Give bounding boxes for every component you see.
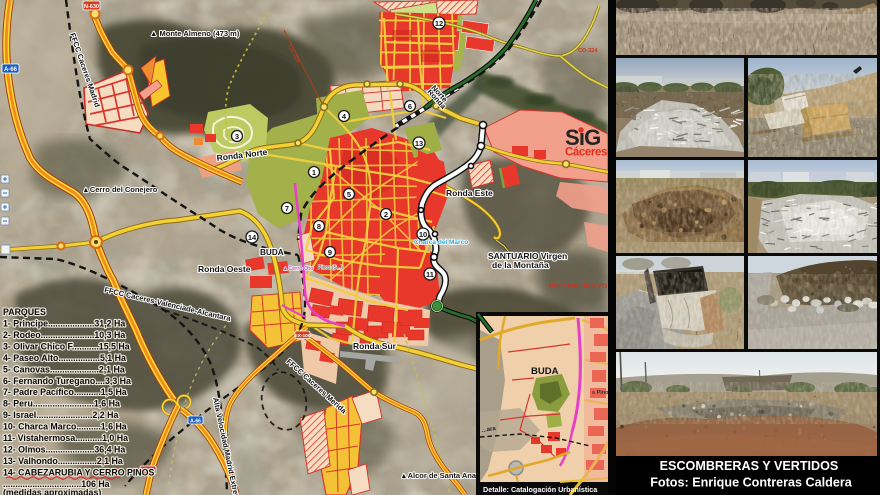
svg-text:13- Valhondo................2,: 13- Valhondo................2,1 Ha (3, 456, 123, 466)
svg-text:Ronda Oeste: Ronda Oeste (198, 264, 251, 274)
svg-text:2: 2 (384, 210, 388, 219)
svg-text:5- Canovas....................: 5- Canovas....................2,1 Ha (3, 364, 125, 374)
svg-text:▲ Monte Almeno (473 m): ▲ Monte Almeno (473 m) (150, 29, 240, 38)
svg-text:9- Israel.....................: 9- Israel.......................2,2 Ha (3, 410, 118, 420)
svg-text:13: 13 (415, 139, 423, 148)
svg-text:14- CABEZARUBIA Y CERRO PINOS: 14- CABEZARUBIA Y CERRO PINOS (3, 467, 154, 477)
svg-text:7: 7 (285, 204, 289, 213)
svg-text:· PORTANCHITO VG: · PORTANCHITO VG (545, 283, 607, 290)
svg-text:8: 8 (317, 222, 321, 231)
svg-text:N-630: N-630 (84, 4, 99, 10)
svg-text:Fotos: Enrique Contreras Calde: Fotos: Enrique Contreras Caldera (650, 476, 853, 490)
svg-text:11: 11 (426, 270, 434, 279)
svg-text:3- Olivar Chico F...........15: 3- Olivar Chico F...........15,5 Ha (3, 341, 130, 351)
svg-text:10: 10 (419, 230, 427, 239)
svg-text:12: 12 (435, 19, 443, 28)
svg-text:BUDA: BUDA (260, 248, 284, 257)
svg-text:A-66: A-66 (190, 419, 201, 425)
svg-text:4- Paseo Alto.................: 4- Paseo Alto.................5,1 Ha (3, 353, 126, 363)
svg-text:Cáceres: Cáceres (565, 147, 607, 159)
svg-text:14: 14 (248, 233, 257, 242)
svg-text:1- Principe...................: 1- Principe...................31,2 Ha (3, 319, 125, 329)
svg-text:PARQUES: PARQUES (3, 307, 46, 317)
svg-text:5: 5 (347, 190, 351, 199)
svg-text:A-66: A-66 (4, 67, 18, 73)
svg-text:9: 9 (328, 248, 332, 257)
svg-text:Detalle: Catalogación Urbaníst: Detalle: Catalogación Urbanística (483, 485, 598, 494)
svg-text:de la Montaña: de la Montaña (492, 260, 549, 270)
svg-text:BUDA: BUDA (531, 366, 559, 377)
svg-text:ESCOMBRERAS Y VERTIDOS: ESCOMBRERAS Y VERTIDOS (660, 459, 839, 473)
svg-text:▴ Cerro Oto: ▴ Cerro Oto (283, 266, 314, 272)
svg-text:12- Olmos....................3: 12- Olmos....................36,4 Ha (3, 445, 125, 455)
svg-text:8- Peru.......................: 8- Peru.........................1,6 Ha (3, 399, 120, 409)
svg-text:(medidas aproximadas): (medidas aproximadas) (3, 488, 101, 495)
svg-text:2- Rodeo......................: 2- Rodeo......................10,3 Ha (3, 330, 125, 340)
svg-text:6- Fernando Turegano....3,3 Ha: 6- Fernando Turegano....3,3 Ha (3, 376, 131, 386)
svg-text:10- Charca Marco..........1,6: 10- Charca Marco..........1,6 Ha (3, 422, 127, 432)
svg-text:▴ Cerro del Conejero: ▴ Cerro del Conejero (83, 185, 158, 194)
svg-text:11- Vistahermosa...........1,0: 11- Vistahermosa...........1,0 Ha (3, 433, 128, 443)
svg-text:▴ Alcor de Santa Ana: ▴ Alcor de Santa Ana (401, 471, 477, 480)
svg-text:CO-324: CO-324 (578, 48, 598, 54)
svg-text:EX-100: EX-100 (295, 333, 311, 339)
svg-text:Pinos (S...): Pinos (S...) (318, 265, 343, 271)
svg-text:7- Padre Pacífico...........1,: 7- Padre Pacífico...........1,5 Ha (3, 387, 127, 397)
svg-text:Ronda Este: Ronda Este (446, 188, 493, 198)
svg-text:3: 3 (235, 132, 239, 141)
svg-text:Ronda Sur: Ronda Sur (353, 341, 397, 351)
svg-text:6: 6 (408, 102, 412, 111)
svg-text:1: 1 (312, 168, 316, 177)
